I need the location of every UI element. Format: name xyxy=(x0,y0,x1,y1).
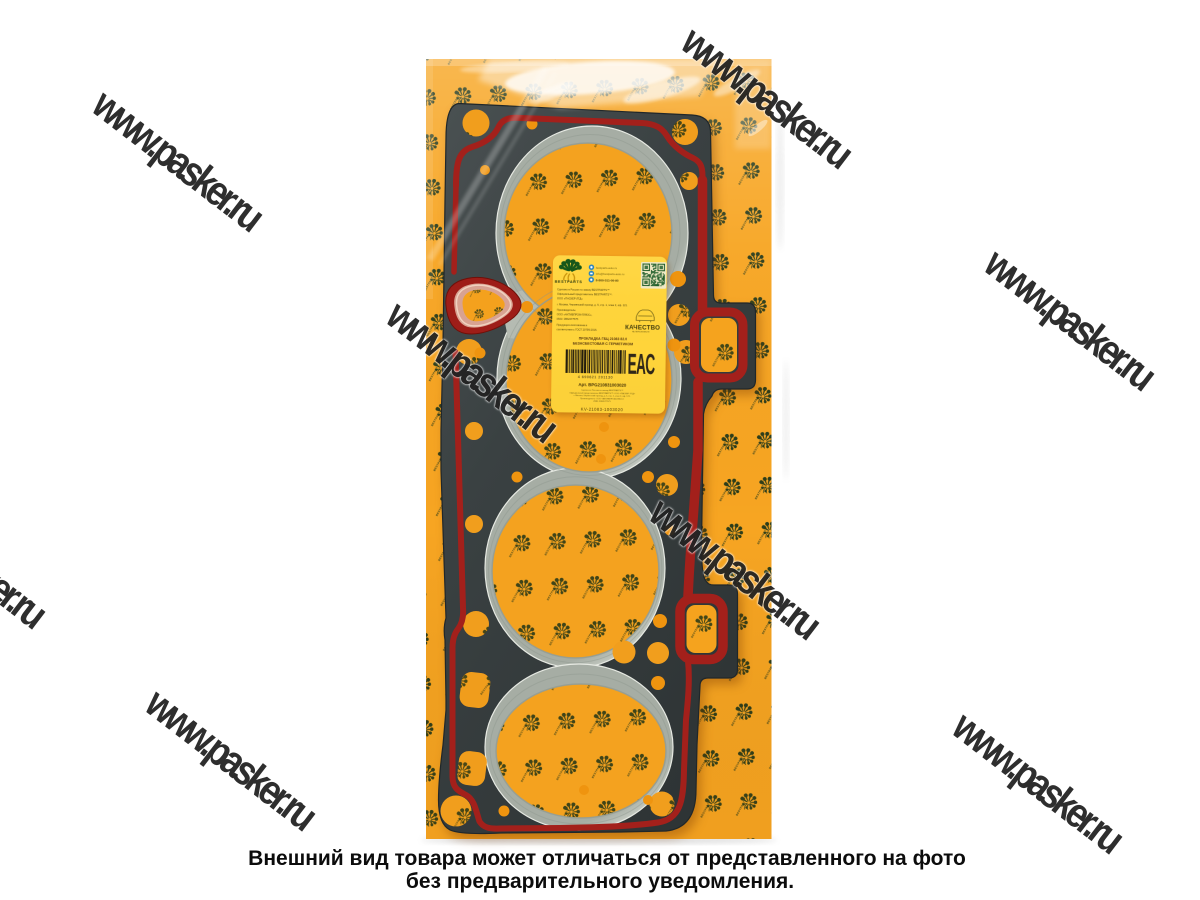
svg-text:Арт. BPG210831003020: Арт. BPG210831003020 xyxy=(578,382,626,388)
svg-text:bestparts-auto.ru: bestparts-auto.ru xyxy=(596,266,618,270)
svg-text:8-800-511-06-95: 8-800-511-06-95 xyxy=(596,278,619,282)
svg-text:4 690621 201130: 4 690621 201130 xyxy=(578,375,613,379)
svg-text:соответствии с ГОСТ 20799-2016: соответствии с ГОСТ 20799-2016. xyxy=(557,327,598,332)
svg-text:ИНН: 3862077575: ИНН: 3862077575 xyxy=(557,317,579,321)
svg-text:EAC: EAC xyxy=(627,347,655,381)
svg-text:Продукция изготовлена в: Продукция изготовлена в xyxy=(557,323,588,327)
svg-text:Производитель:: Производитель: xyxy=(557,308,577,312)
svg-text:ИНН: 3862077575: ИНН: 3862077575 xyxy=(593,401,611,403)
svg-text:ООО «АКТИВПРОМ-ПЛЮС»,: ООО «АКТИВПРОМ-ПЛЮС», xyxy=(557,312,593,316)
svg-text:info@bestparts-auto.ru: info@bestparts-auto.ru xyxy=(596,272,625,276)
svg-text:ООО «ПАСКЕР ЛТД»: ООО «ПАСКЕР ЛТД» xyxy=(557,296,583,300)
svg-text:БЕЗАСБЕСТОВАЯ С ГЕРМЕТИКОМ: БЕЗАСБЕСТОВАЯ С ГЕРМЕТИКОМ xyxy=(573,341,633,346)
svg-text:Производитель: ООО «АКТИВПРОМ-: Производитель: ООО «АКТИВПРОМ-ПЛЮС» xyxy=(580,397,625,401)
svg-text:KV-21083-1003020: KV-21083-1003020 xyxy=(581,407,624,413)
svg-text:НА ПЕРВОМ МЕСТЕ: НА ПЕРВОМ МЕСТЕ xyxy=(632,330,650,333)
svg-text:Сделано в России по заказу BES: Сделано в России по заказу BESTPARTS™ xyxy=(557,287,610,292)
svg-text:ПРОКЛАДКА ГБЦ 21083 82.0: ПРОКЛАДКА ГБЦ 21083 82.0 xyxy=(579,337,628,342)
svg-text:BESTPARTS: BESTPARTS xyxy=(555,280,583,284)
svg-text:Официальный представитель BEST: Официальный представитель BESTPARTS™: xyxy=(557,292,613,297)
